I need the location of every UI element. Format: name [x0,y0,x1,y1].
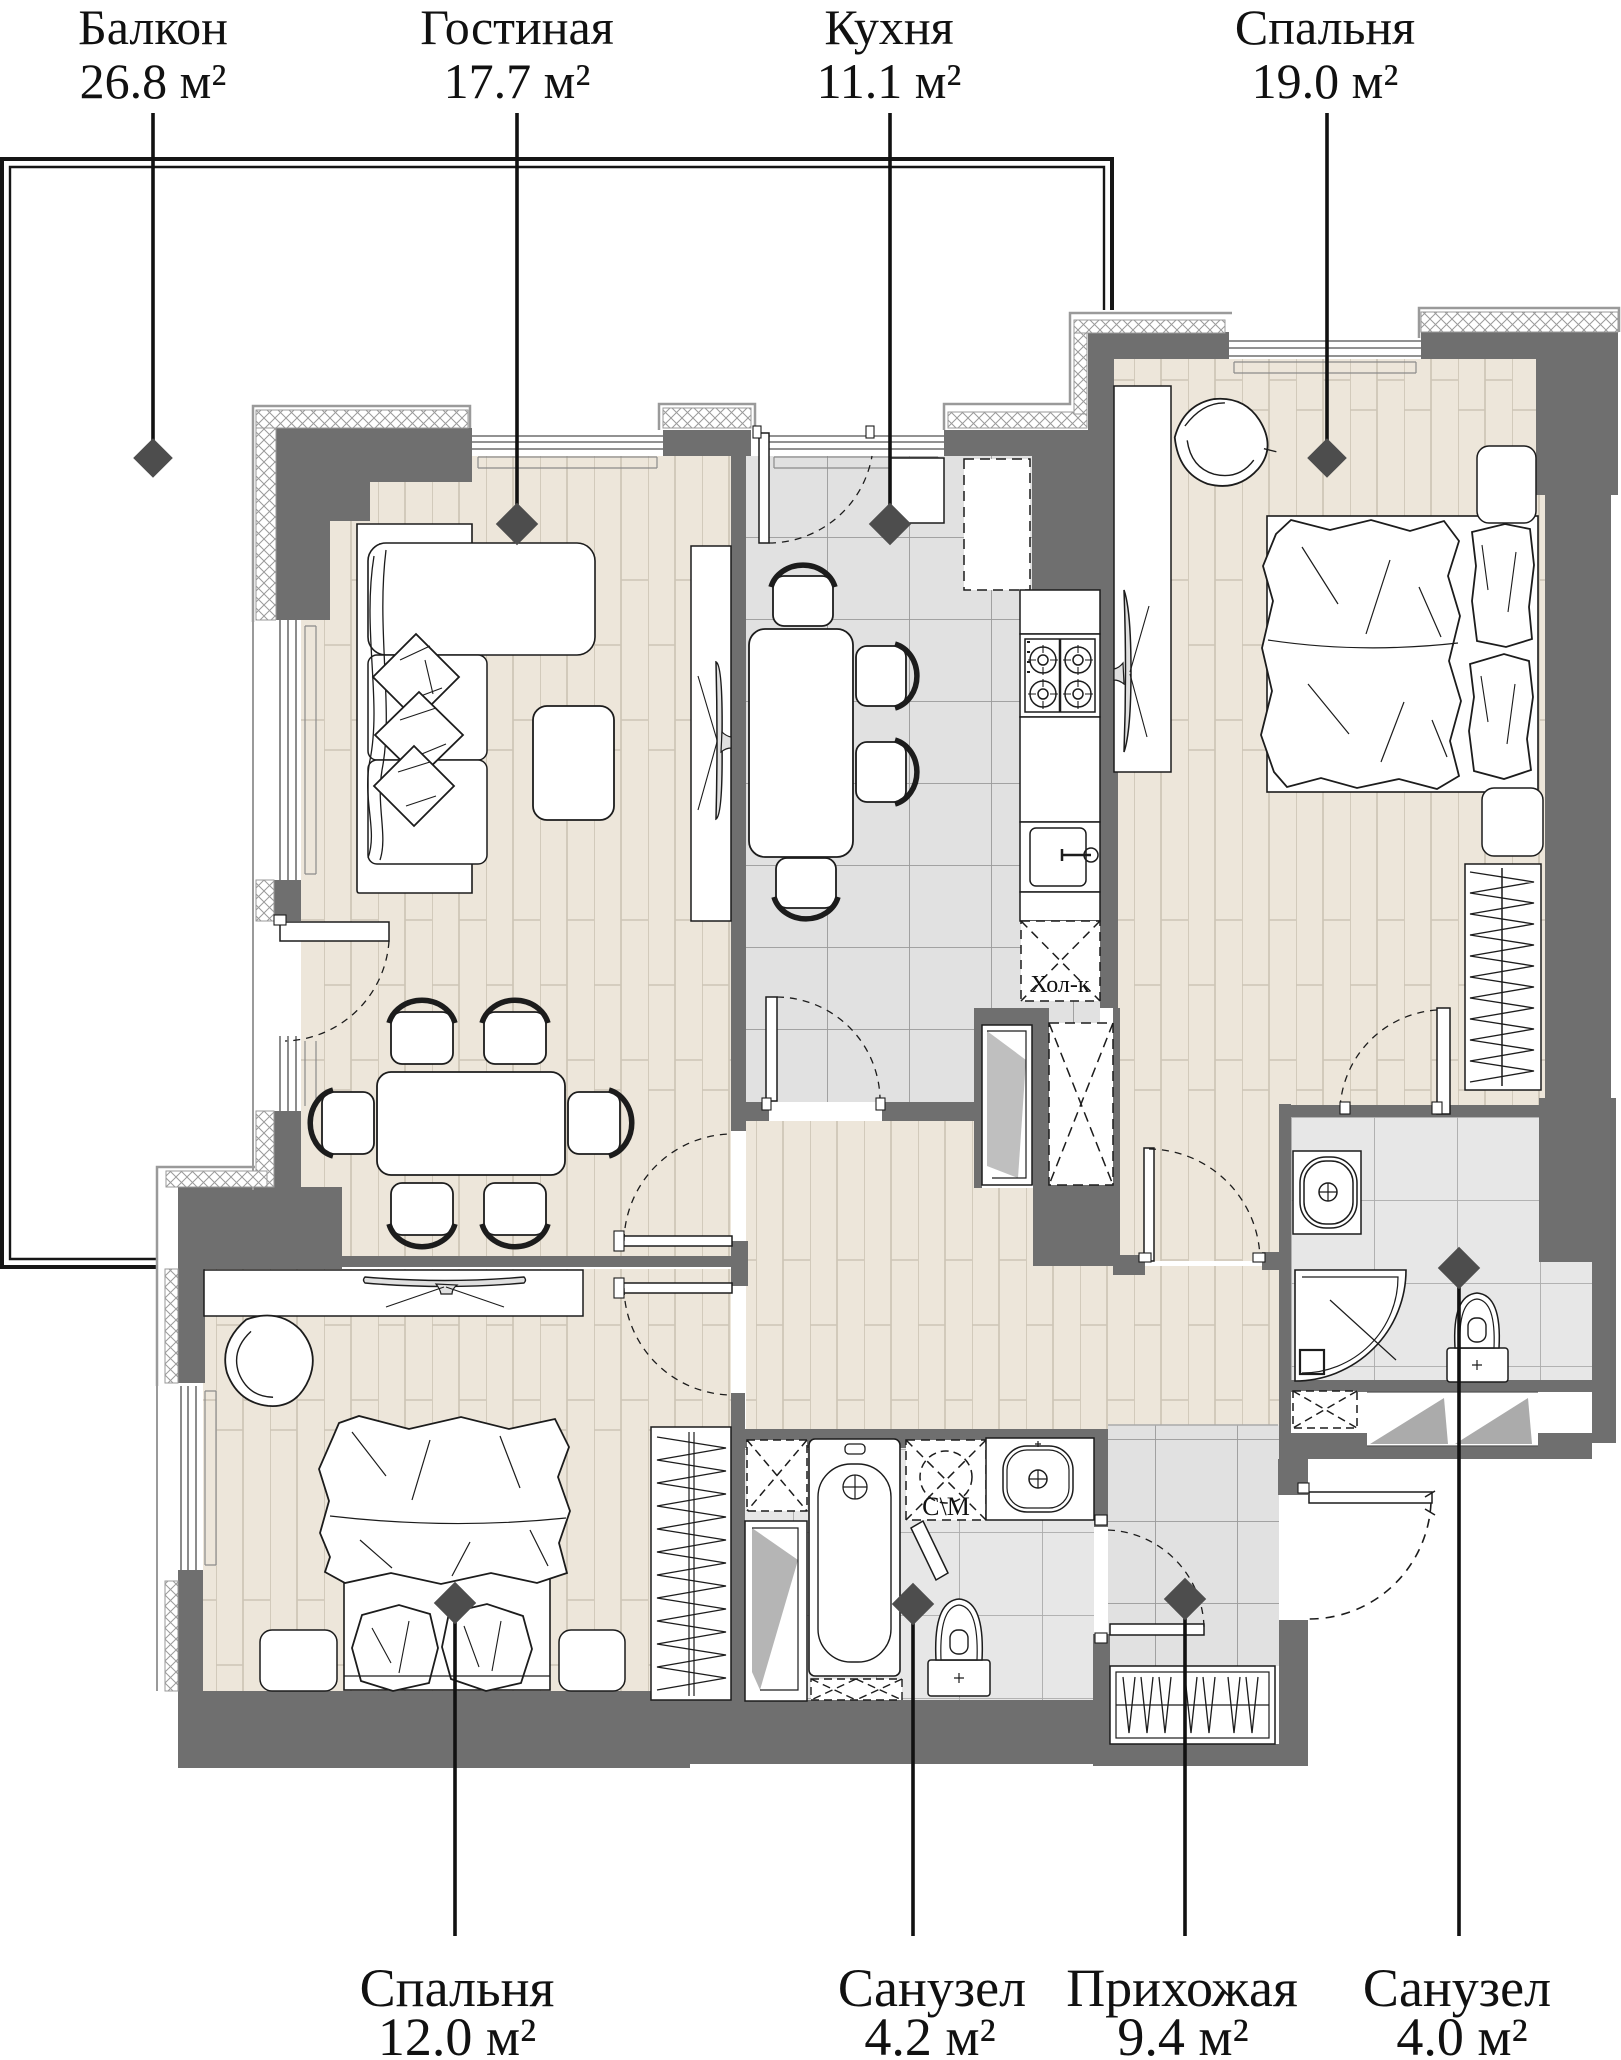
svg-text:17.7 м²: 17.7 м² [444,53,591,109]
svg-text:Гостиная: Гостиная [420,0,614,55]
svg-text:С\М: С\М [922,1492,970,1521]
svg-text:9.4 м²: 9.4 м² [1117,2007,1248,2060]
svg-text:Балкон: Балкон [78,0,228,55]
svg-text:Хол-к: Хол-к [1030,972,1089,998]
svg-text:Спальня: Спальня [1235,0,1415,55]
svg-text:19.0 м²: 19.0 м² [1252,53,1399,109]
svg-text:4.2 м²: 4.2 м² [864,2007,995,2060]
svg-text:11.1 м²: 11.1 м² [817,53,962,109]
svg-text:Кухня: Кухня [824,0,953,55]
svg-text:12.0 м²: 12.0 м² [378,2007,536,2060]
svg-text:26.8 м²: 26.8 м² [80,53,227,109]
svg-text:4.0 м²: 4.0 м² [1396,2007,1527,2060]
